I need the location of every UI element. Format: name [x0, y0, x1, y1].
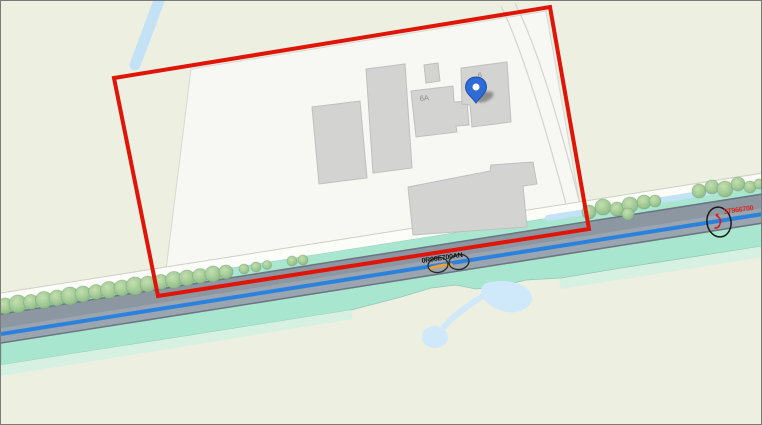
pond-small — [422, 326, 448, 348]
map-viewport[interactable]: 6A 6 0R96E700AN 3T966700 — [0, 0, 762, 425]
building[interactable] — [312, 101, 367, 184]
map-canvas[interactable]: 6A 6 0R96E700AN 3T966700 — [1, 1, 762, 425]
building-6a-label: 6A — [419, 93, 429, 103]
building[interactable] — [366, 64, 412, 173]
building[interactable] — [424, 63, 440, 83]
